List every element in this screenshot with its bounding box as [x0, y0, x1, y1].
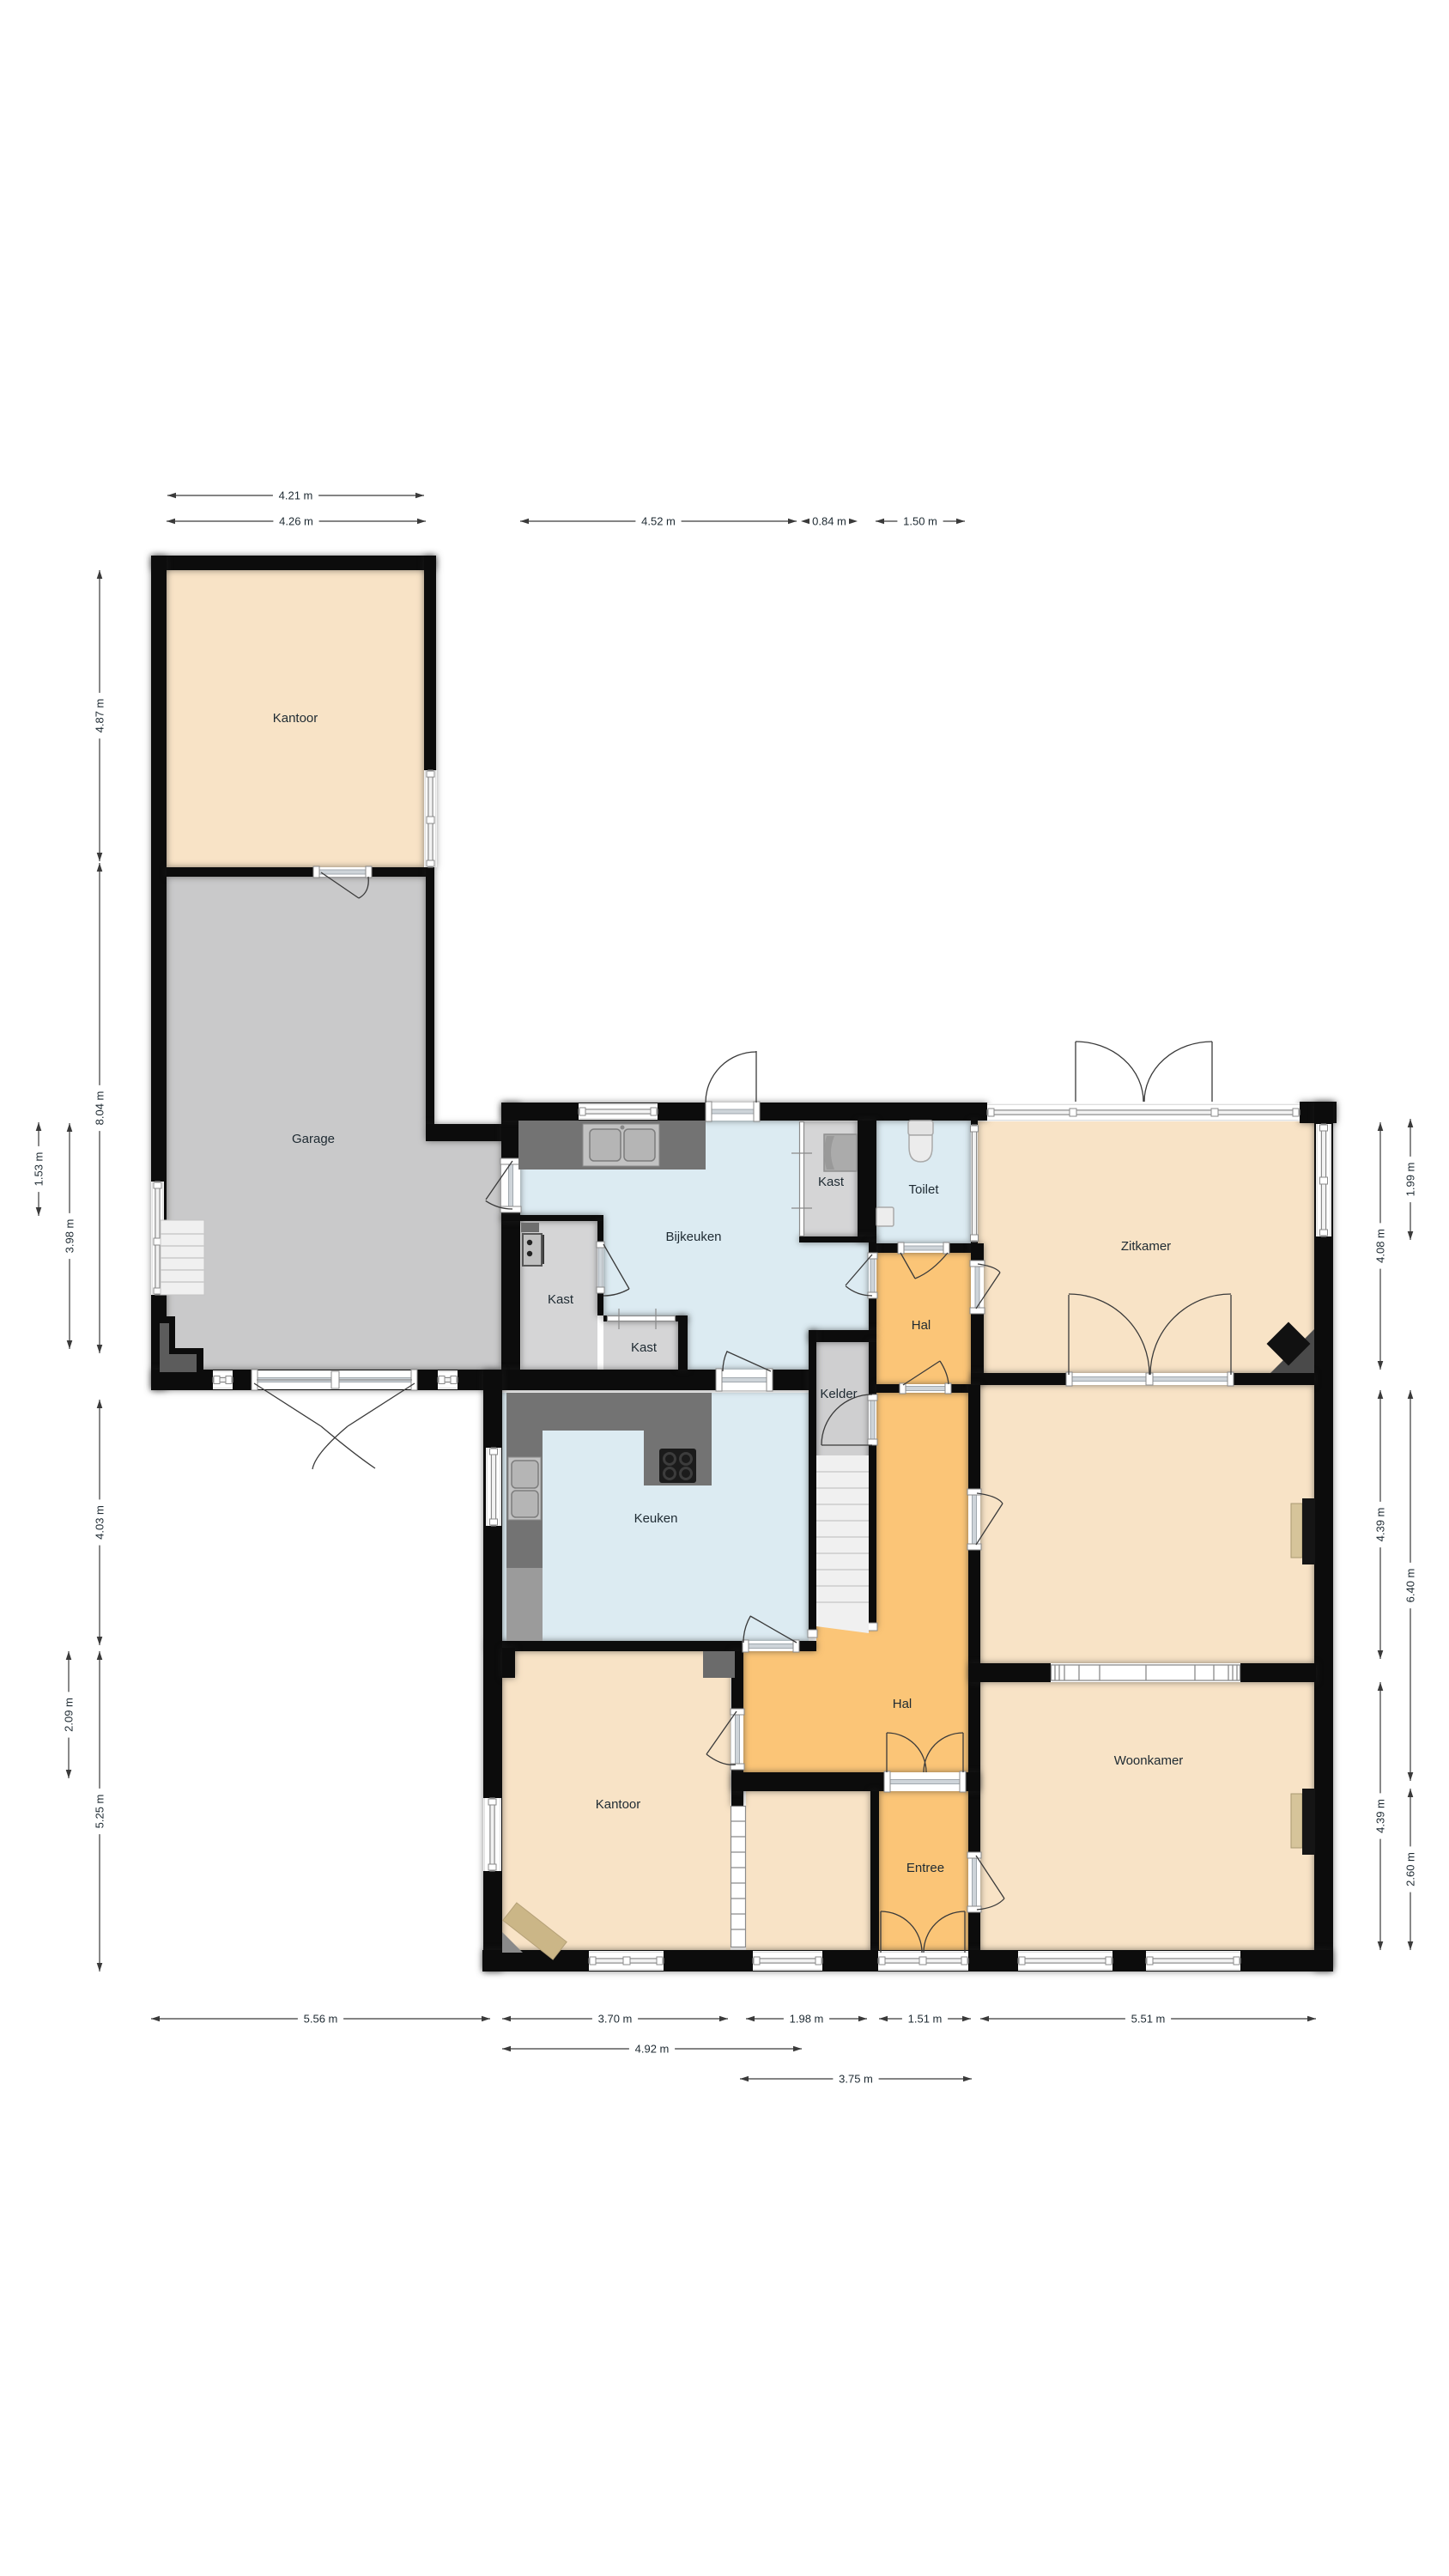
svg-text:5.25 m: 5.25 m [94, 1795, 106, 1829]
svg-text:Entree: Entree [906, 1861, 944, 1875]
svg-text:5.51 m: 5.51 m [1131, 2013, 1166, 2026]
svg-text:Kast: Kast [548, 1292, 574, 1307]
svg-text:Bijkeuken: Bijkeuken [665, 1230, 721, 1244]
svg-text:Kelder: Kelder [820, 1387, 857, 1401]
svg-text:1.50 m: 1.50 m [903, 515, 937, 528]
svg-text:4.26 m: 4.26 m [279, 515, 313, 528]
svg-text:Kast: Kast [631, 1340, 658, 1355]
svg-text:1.51 m: 1.51 m [908, 2013, 943, 2026]
svg-text:3.75 m: 3.75 m [839, 2073, 873, 2086]
svg-text:5.56 m: 5.56 m [304, 2013, 338, 2026]
svg-text:4.03 m: 4.03 m [94, 1505, 106, 1540]
svg-text:3.70 m: 3.70 m [598, 2013, 633, 2026]
svg-text:Toilet: Toilet [908, 1182, 939, 1197]
svg-text:4.21 m: 4.21 m [279, 489, 313, 502]
svg-text:Keuken: Keuken [634, 1511, 678, 1526]
svg-text:1.53 m: 1.53 m [33, 1152, 45, 1187]
svg-text:Garage: Garage [292, 1132, 335, 1146]
svg-text:2.09 m: 2.09 m [63, 1698, 76, 1732]
svg-text:Hal: Hal [912, 1318, 931, 1333]
svg-text:4.08 m: 4.08 m [1374, 1229, 1387, 1263]
svg-text:Kast: Kast [818, 1175, 845, 1189]
svg-text:4.52 m: 4.52 m [641, 515, 676, 528]
svg-text:4.92 m: 4.92 m [635, 2043, 670, 2056]
svg-text:Kantoor: Kantoor [596, 1797, 641, 1812]
svg-text:2.60 m: 2.60 m [1404, 1852, 1417, 1886]
svg-text:0.84 m: 0.84 m [812, 515, 846, 528]
svg-text:Woonkamer: Woonkamer [1114, 1753, 1184, 1768]
svg-text:3.98 m: 3.98 m [64, 1219, 76, 1254]
svg-text:1.99 m: 1.99 m [1404, 1163, 1417, 1197]
svg-text:8.04 m: 8.04 m [94, 1091, 106, 1126]
svg-text:Zitkamer: Zitkamer [1121, 1239, 1171, 1254]
svg-text:4.87 m: 4.87 m [94, 699, 106, 733]
svg-text:Kantoor: Kantoor [273, 711, 318, 726]
svg-text:4.39 m: 4.39 m [1374, 1799, 1387, 1833]
svg-text:4.39 m: 4.39 m [1374, 1508, 1387, 1542]
svg-text:1.98 m: 1.98 m [790, 2013, 824, 2026]
svg-text:Hal: Hal [893, 1697, 912, 1711]
svg-text:6.40 m: 6.40 m [1404, 1569, 1417, 1603]
